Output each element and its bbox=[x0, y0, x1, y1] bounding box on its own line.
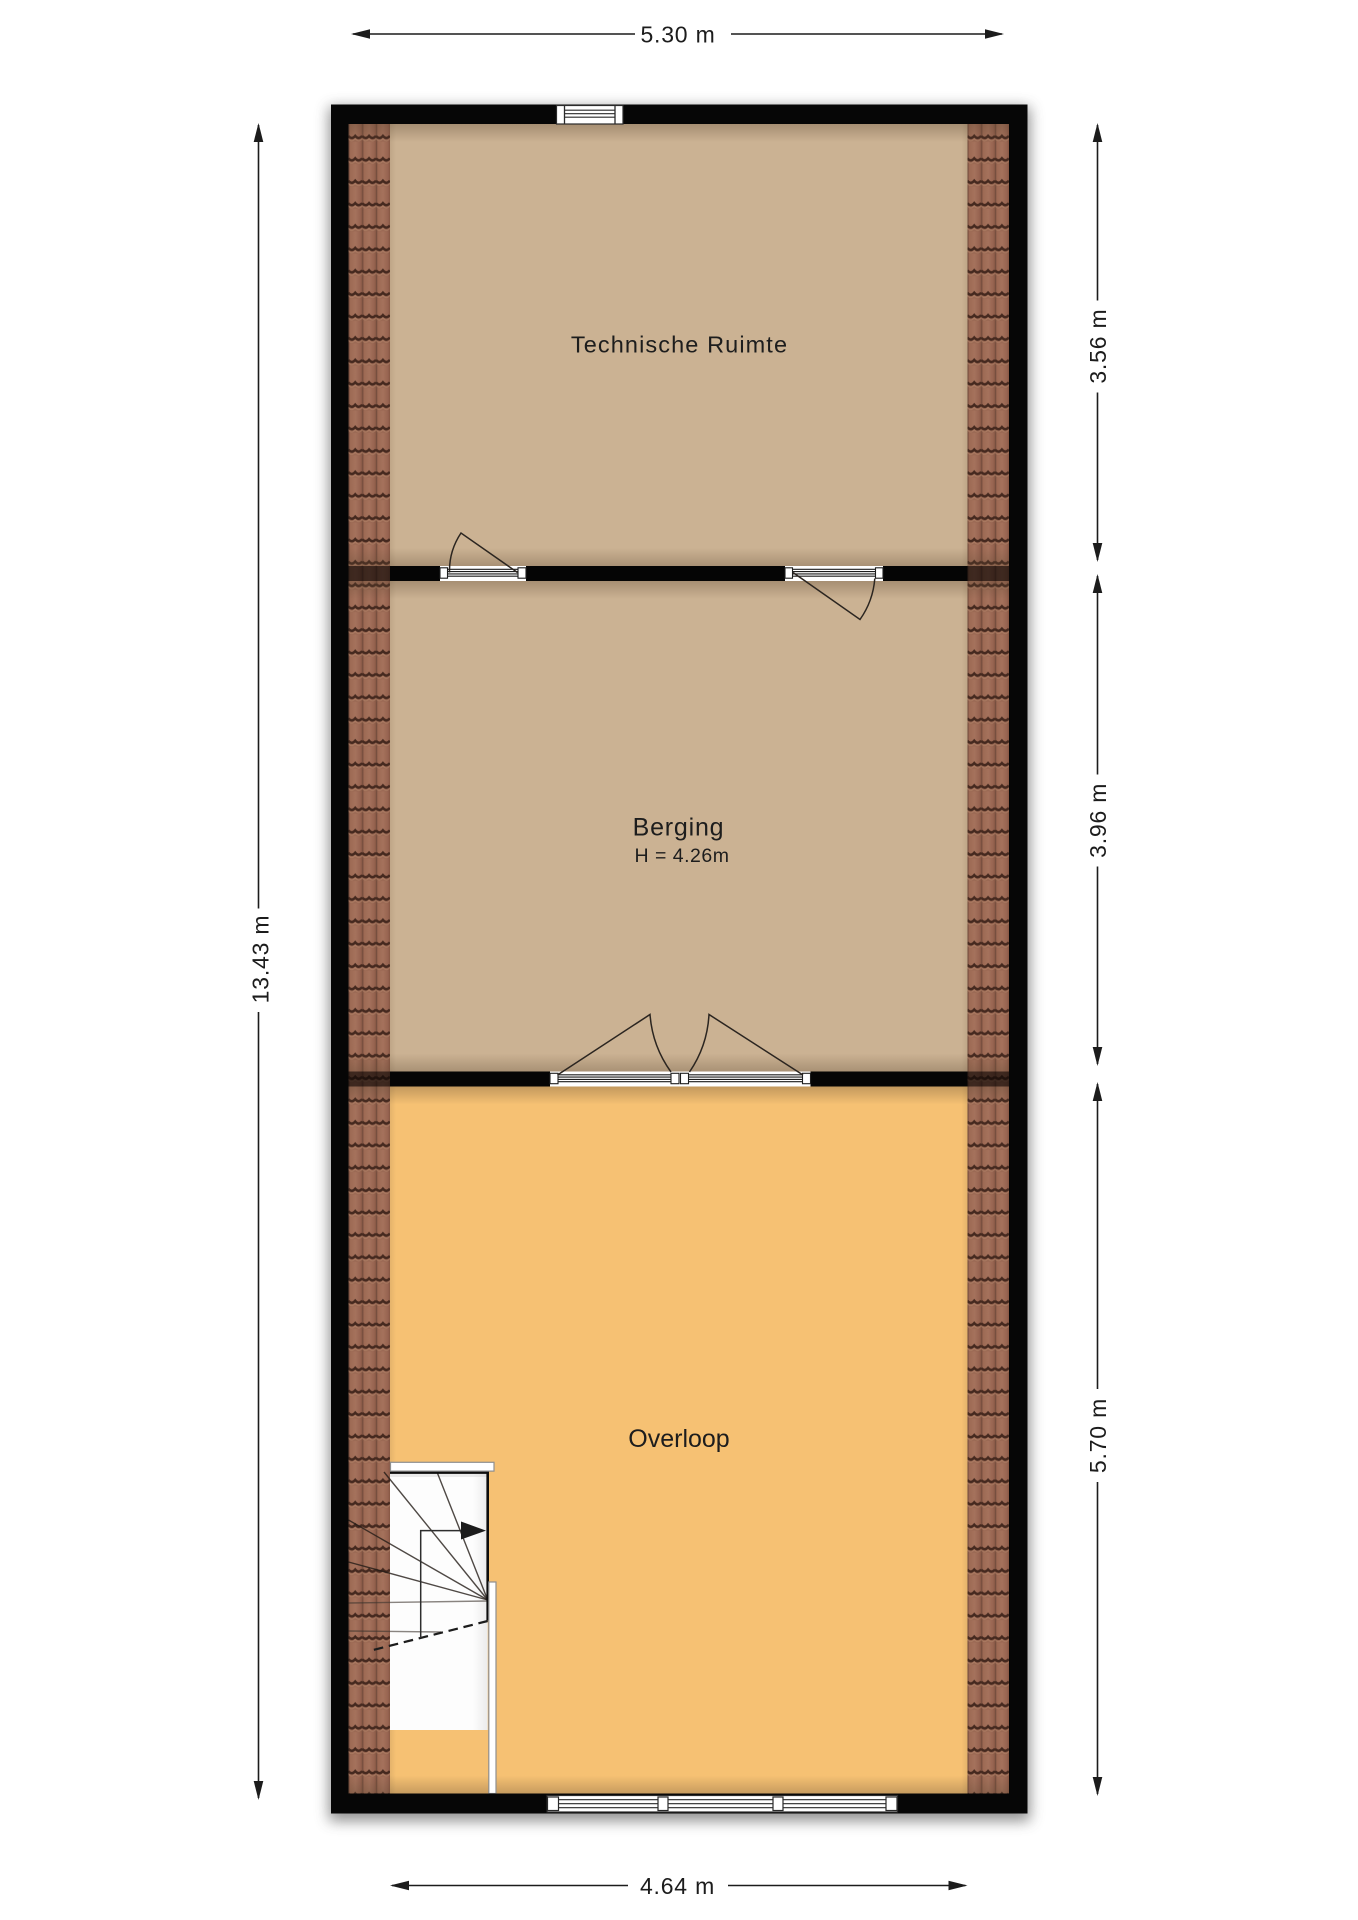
svg-text:13.43 m: 13.43 m bbox=[247, 915, 273, 1004]
svg-text:Overloop: Overloop bbox=[628, 1425, 729, 1453]
svg-text:Berging: Berging bbox=[633, 814, 725, 842]
svg-text:H = 4.26m: H = 4.26m bbox=[634, 845, 729, 867]
svg-text:3.56 m: 3.56 m bbox=[1085, 309, 1111, 384]
svg-text:5.30 m: 5.30 m bbox=[640, 21, 715, 47]
svg-text:3.96 m: 3.96 m bbox=[1085, 783, 1111, 858]
svg-text:5.70 m: 5.70 m bbox=[1085, 1398, 1111, 1473]
svg-text:Technische Ruimte: Technische Ruimte bbox=[571, 332, 788, 358]
svg-text:4.64 m: 4.64 m bbox=[640, 1873, 715, 1899]
